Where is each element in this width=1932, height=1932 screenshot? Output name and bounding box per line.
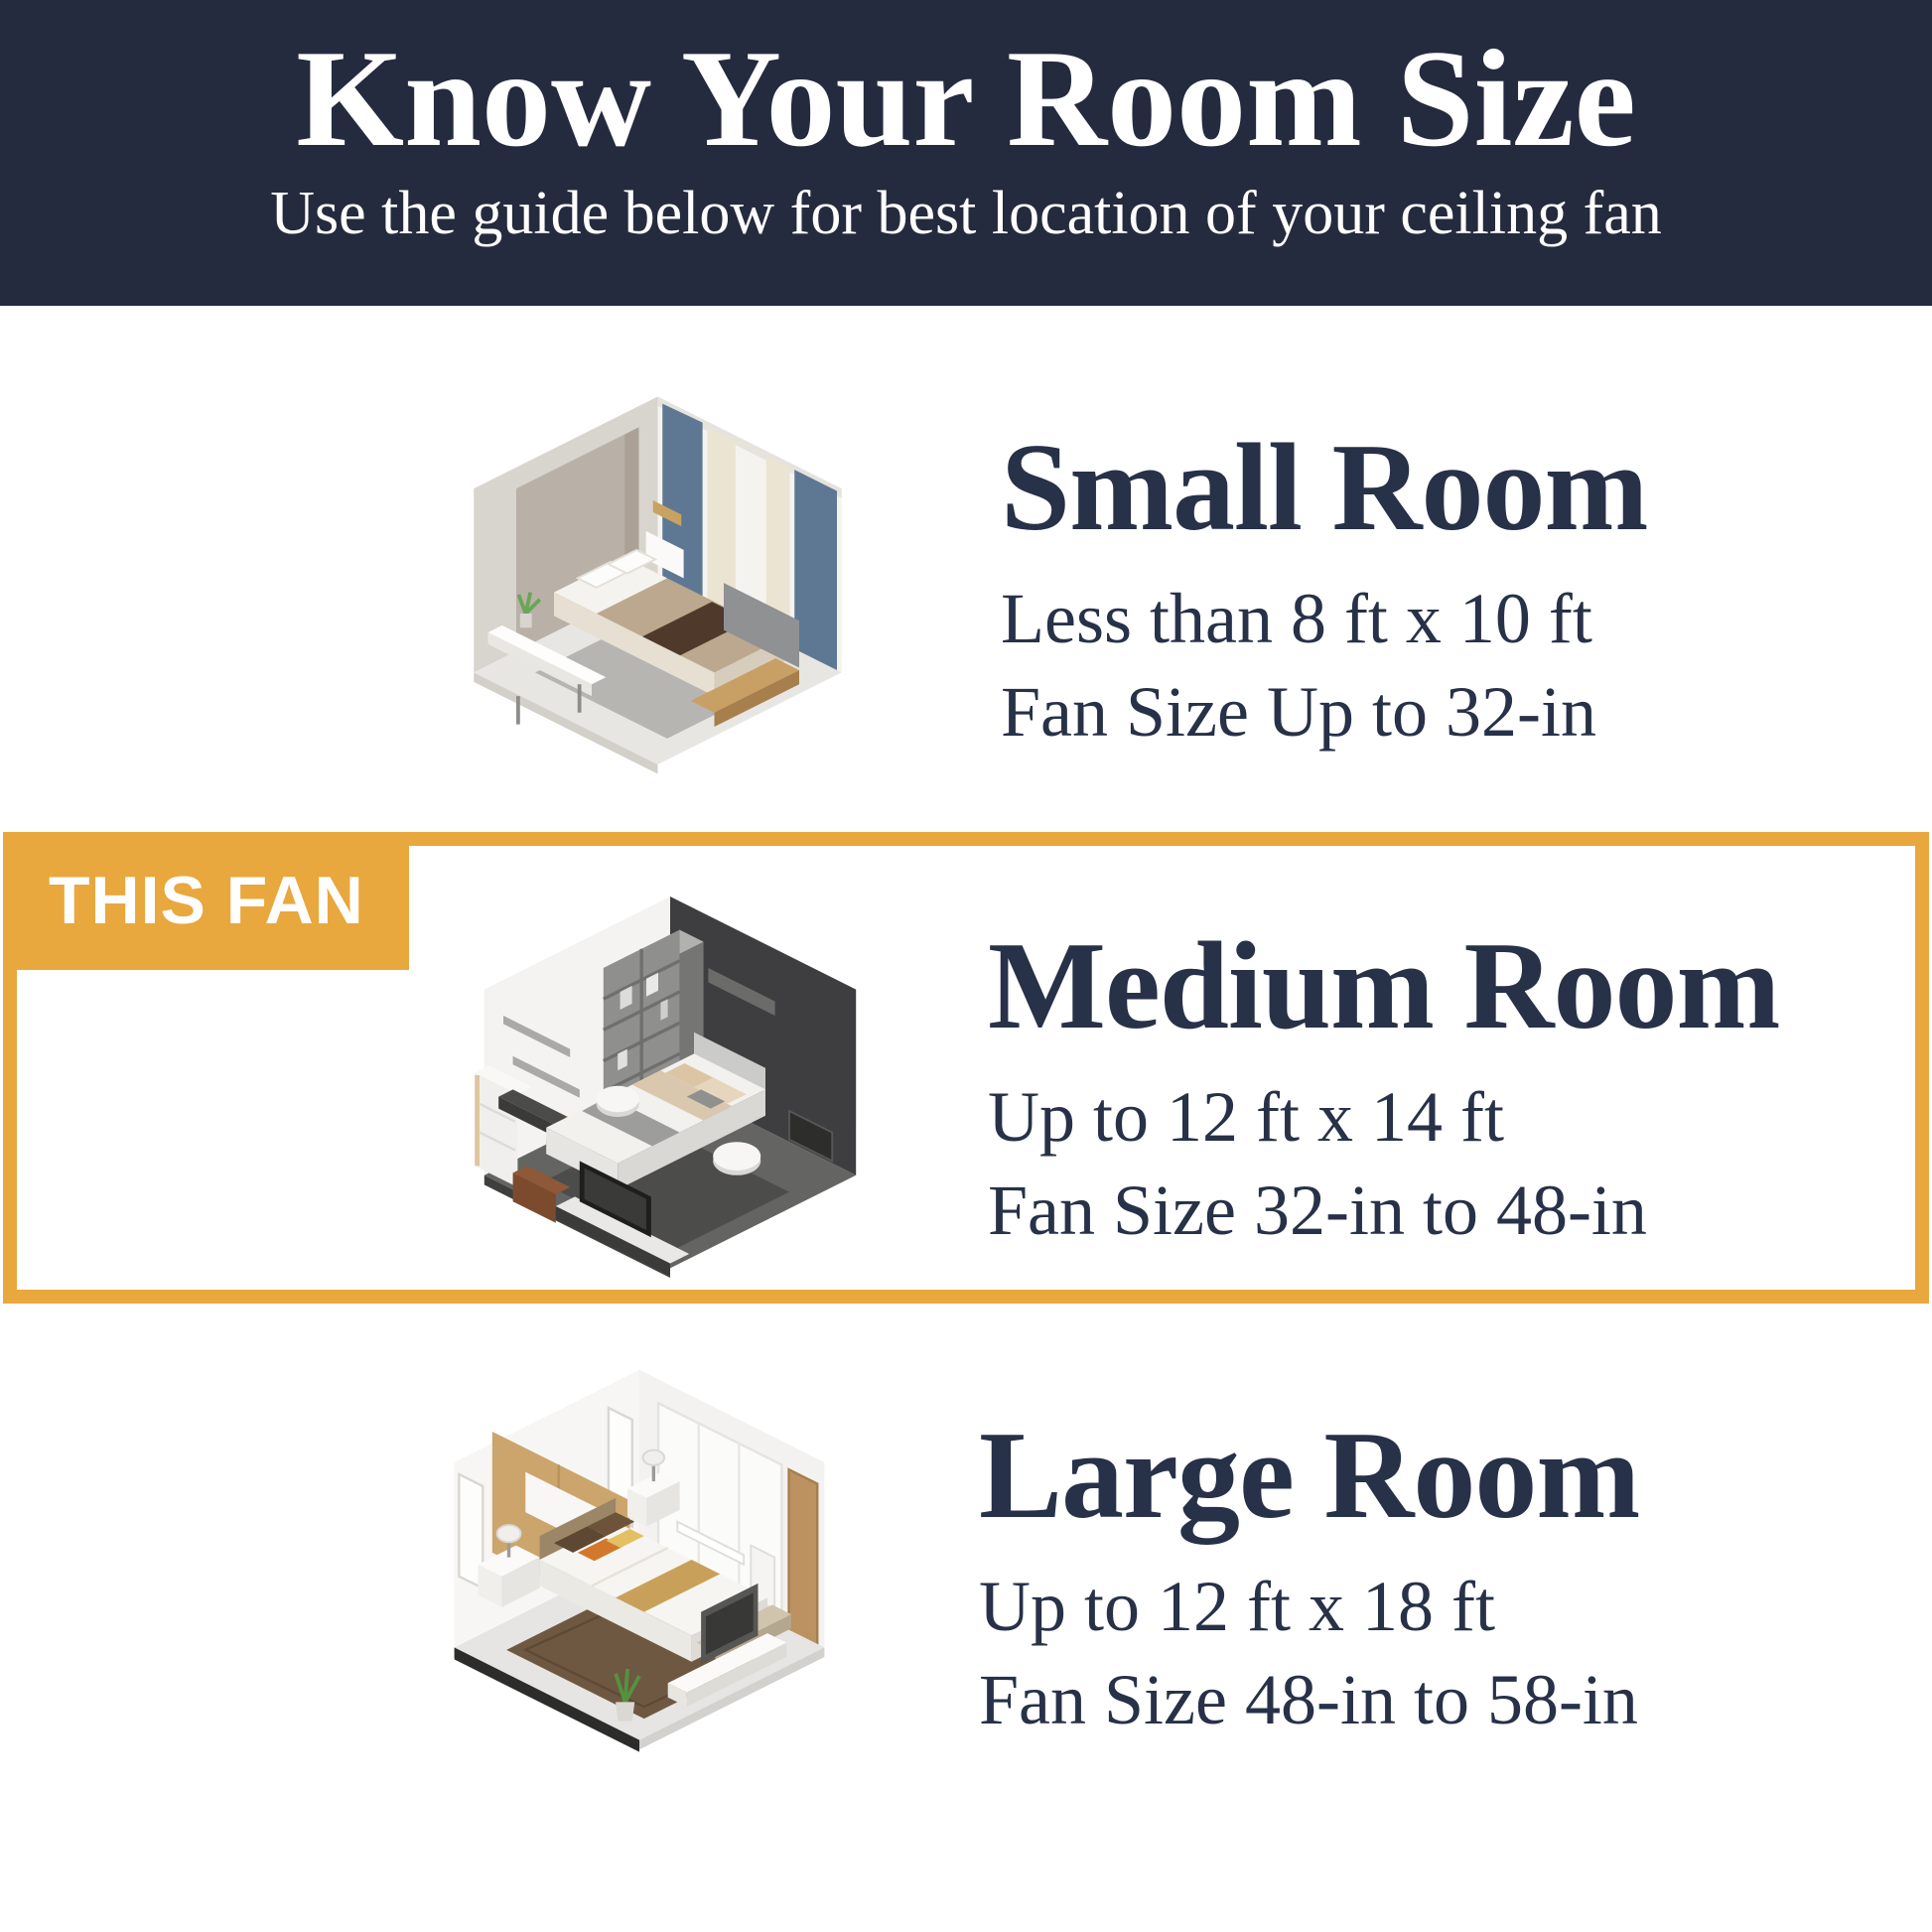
section-large-room: Large Room Up to 12 ft x 18 ft Fan Size … — [979, 1414, 1639, 1746]
small-room-title: Small Room — [1001, 426, 1648, 551]
medium-room-fan-size: Fan Size 32-in to 48-in — [988, 1164, 1779, 1257]
small-room-isometric-bedroom — [422, 349, 894, 821]
large-room-dimensions: Up to 12 ft x 18 ft — [979, 1560, 1639, 1653]
this-fan-badge-label: THIS FAN — [49, 863, 364, 938]
large-room-illustration — [402, 1322, 877, 1797]
large-room-fan-size: Fan Size 48-in to 58-in — [979, 1653, 1639, 1746]
small-room-illustration — [422, 349, 894, 821]
header-banner: Know Your Room Size Use the guide below … — [0, 0, 1932, 306]
medium-room-title: Medium Room — [988, 924, 1779, 1049]
small-room-dimensions: Less than 8 ft x 10 ft — [1001, 572, 1648, 665]
medium-room-dimensions: Up to 12 ft x 14 ft — [988, 1070, 1779, 1164]
section-medium-room: Medium Room Up to 12 ft x 14 ft Fan Size… — [988, 924, 1779, 1257]
medium-room-isometric-bedroom — [432, 849, 908, 1325]
room-size-guide-infographic: Know Your Room Size Use the guide below … — [0, 0, 1932, 1932]
page-title: Know Your Room Size — [0, 0, 1932, 169]
small-room-fan-size: Fan Size Up to 32-in — [1001, 665, 1648, 759]
large-room-isometric-bedroom — [402, 1322, 877, 1797]
section-small-room: Small Room Less than 8 ft x 10 ft Fan Si… — [1001, 426, 1648, 759]
this-fan-badge: THIS FAN — [3, 832, 409, 970]
medium-room-illustration — [432, 849, 908, 1325]
large-room-title: Large Room — [979, 1414, 1639, 1539]
page-subtitle: Use the guide below for best location of… — [0, 176, 1932, 251]
